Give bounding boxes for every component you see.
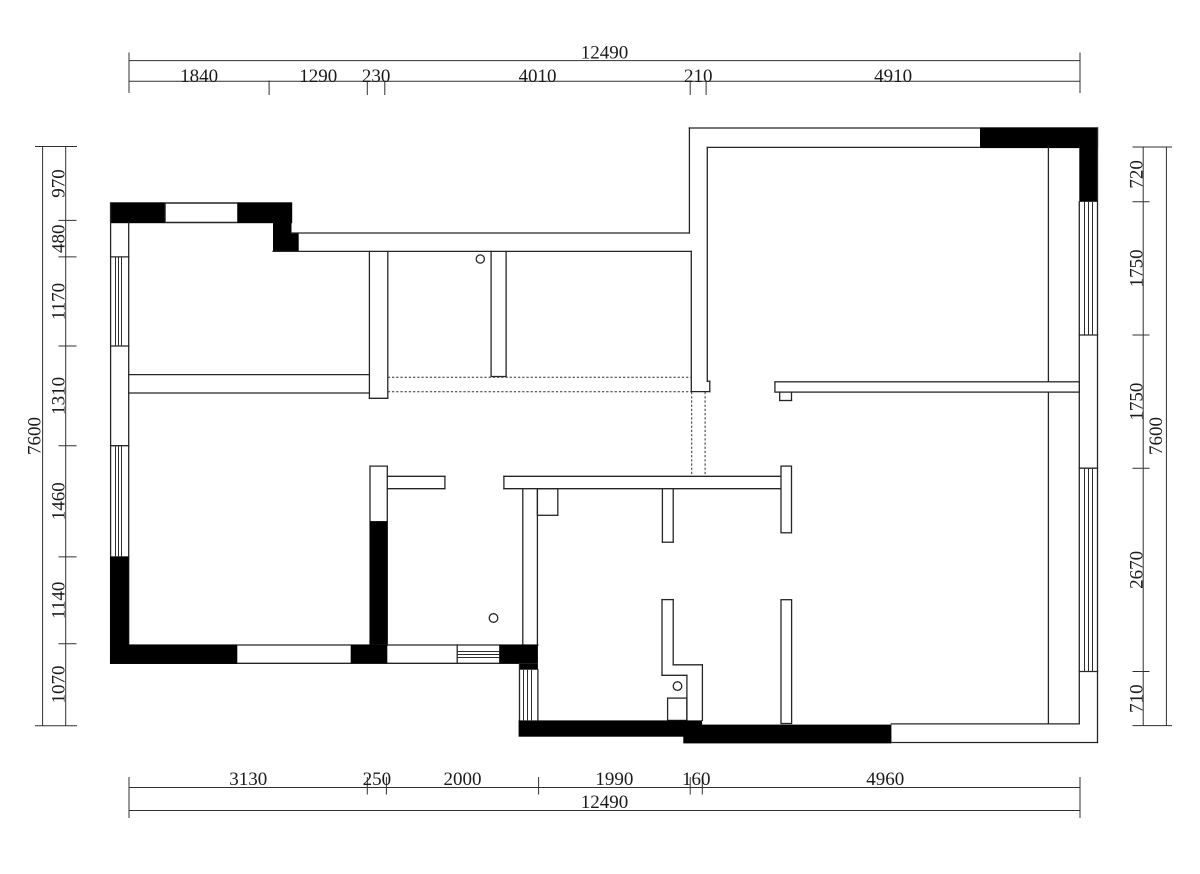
svg-text:210: 210 <box>684 66 713 87</box>
svg-text:160: 160 <box>682 769 711 790</box>
svg-text:2670: 2670 <box>1126 551 1147 589</box>
svg-text:12490: 12490 <box>581 792 629 813</box>
svg-text:480: 480 <box>49 224 70 253</box>
svg-text:970: 970 <box>49 169 70 198</box>
svg-text:7600: 7600 <box>25 417 46 455</box>
svg-text:1290: 1290 <box>299 66 337 87</box>
svg-text:3130: 3130 <box>229 769 267 790</box>
svg-text:1310: 1310 <box>49 377 70 415</box>
svg-text:4910: 4910 <box>874 66 912 87</box>
svg-text:1170: 1170 <box>49 283 70 320</box>
svg-text:710: 710 <box>1126 684 1147 713</box>
svg-text:1750: 1750 <box>1126 383 1147 421</box>
svg-text:1990: 1990 <box>595 769 633 790</box>
svg-text:2000: 2000 <box>444 769 482 790</box>
svg-text:7600: 7600 <box>1146 417 1167 455</box>
svg-text:12490: 12490 <box>581 42 629 63</box>
svg-text:250: 250 <box>363 769 392 790</box>
svg-text:230: 230 <box>362 66 391 87</box>
svg-text:720: 720 <box>1126 160 1147 189</box>
svg-text:4010: 4010 <box>519 66 557 87</box>
svg-text:1070: 1070 <box>49 666 70 704</box>
svg-text:1840: 1840 <box>180 66 218 87</box>
svg-text:1460: 1460 <box>49 482 70 520</box>
svg-text:1140: 1140 <box>49 582 70 619</box>
svg-text:1750: 1750 <box>1126 249 1147 287</box>
svg-text:4960: 4960 <box>866 769 904 790</box>
